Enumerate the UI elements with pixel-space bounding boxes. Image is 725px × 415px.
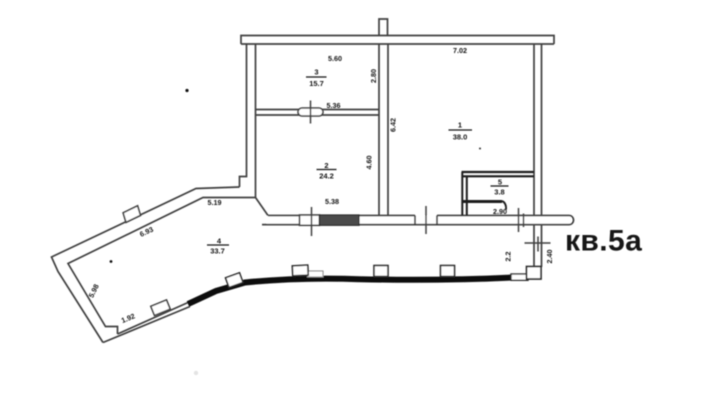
svg-text:5.19: 5.19 bbox=[208, 198, 222, 207]
svg-text:6.42: 6.42 bbox=[389, 118, 398, 132]
svg-text:3: 3 bbox=[314, 68, 318, 77]
svg-text:5.60: 5.60 bbox=[328, 54, 342, 63]
svg-text:кв.5а: кв.5а bbox=[565, 225, 642, 258]
svg-text:4.60: 4.60 bbox=[365, 156, 374, 170]
svg-text:5.36: 5.36 bbox=[327, 101, 341, 110]
svg-text:3.8: 3.8 bbox=[494, 188, 504, 197]
svg-text:33.7: 33.7 bbox=[210, 247, 225, 256]
svg-text:5.38: 5.38 bbox=[325, 197, 339, 206]
svg-text:2: 2 bbox=[324, 161, 328, 170]
svg-text:2.90: 2.90 bbox=[493, 207, 507, 216]
svg-text:2.2: 2.2 bbox=[504, 252, 513, 262]
svg-text:7.02: 7.02 bbox=[453, 46, 467, 55]
svg-text:15.7: 15.7 bbox=[309, 79, 324, 88]
svg-text:6.93: 6.93 bbox=[138, 225, 154, 239]
svg-text:2.80: 2.80 bbox=[369, 69, 378, 83]
svg-text:24.2: 24.2 bbox=[319, 172, 334, 181]
svg-text:38.0: 38.0 bbox=[453, 133, 468, 142]
svg-text:4: 4 bbox=[217, 237, 222, 246]
svg-text:5.98: 5.98 bbox=[87, 283, 101, 300]
svg-text:1.92: 1.92 bbox=[120, 311, 136, 325]
svg-text:5: 5 bbox=[498, 178, 502, 187]
svg-text:1: 1 bbox=[458, 121, 462, 130]
svg-text:2.40: 2.40 bbox=[545, 250, 554, 264]
